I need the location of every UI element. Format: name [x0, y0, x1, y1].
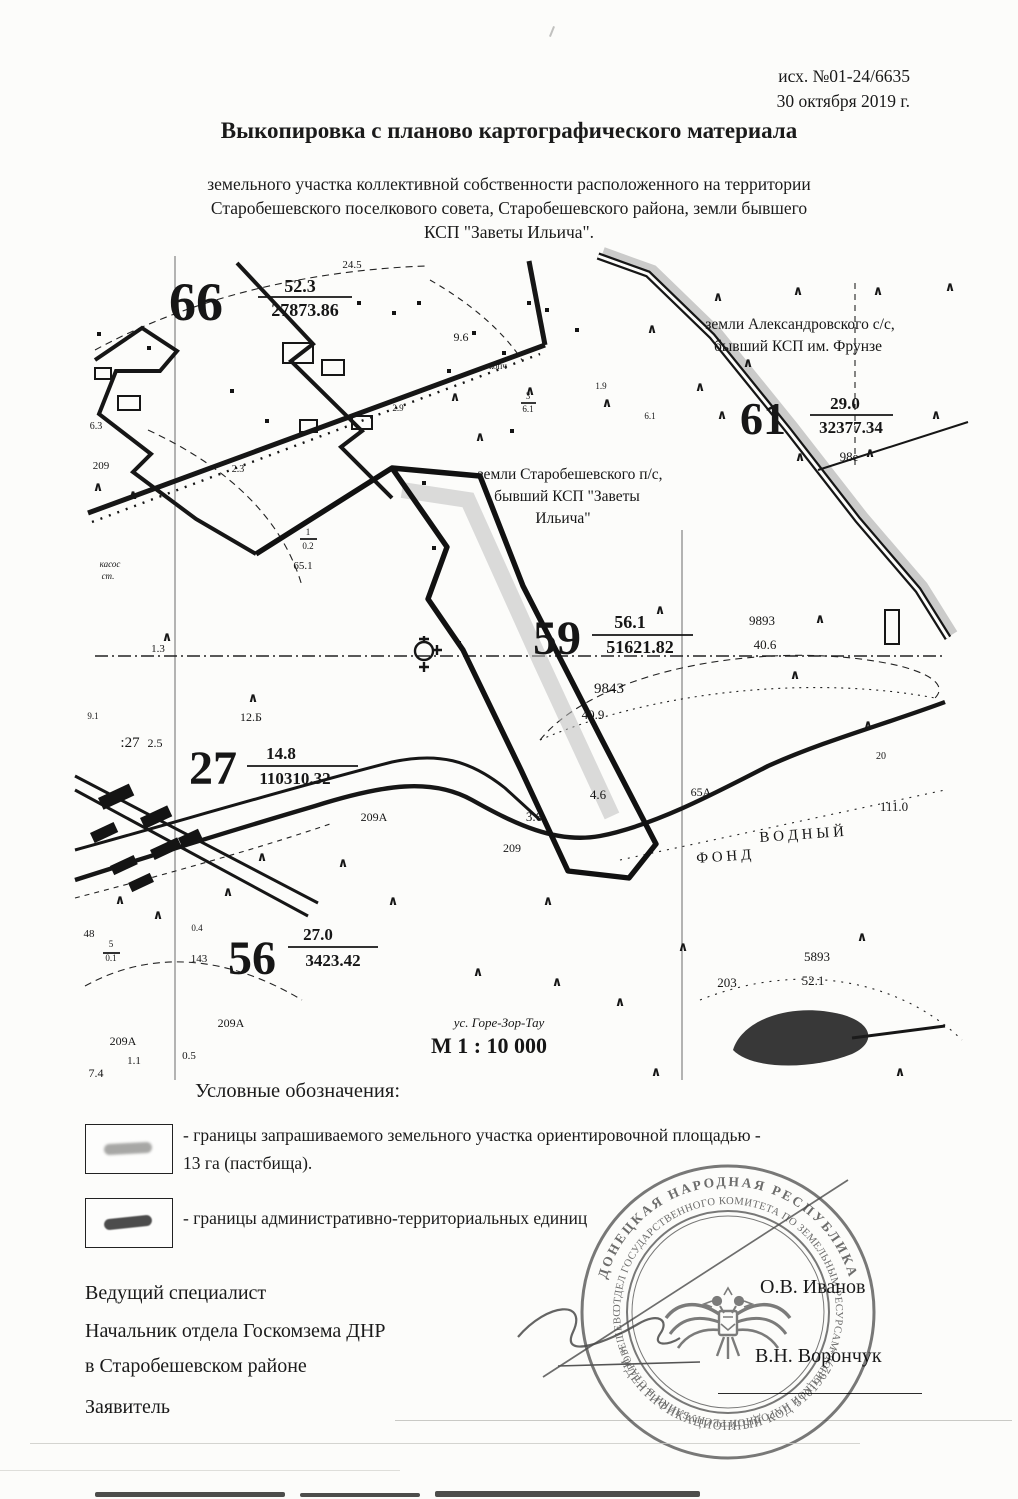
map-label: 2.5 [148, 736, 163, 750]
map-label: 9.6 [454, 330, 469, 344]
subtitle-line-3: КСП "Заветы Ильича". [424, 222, 594, 242]
map-label: 143 [191, 953, 208, 965]
cemetery-symbol [415, 636, 442, 672]
map-label: 52.1 [802, 973, 825, 988]
point-mark [527, 301, 531, 305]
map-label: 6.1 [644, 411, 655, 421]
signature-role-head-line1: Начальник отдела Госкомзема ДНР [85, 1320, 386, 1343]
pasture-caret-symbol: ∧ [793, 283, 804, 298]
map-label: 0.1 [105, 953, 116, 963]
map-label: земли Александровского с/с, [705, 316, 894, 333]
stamp-ring-outer-top: ДОНЕЦКАЯ НАРОДНАЯ РЕСПУБЛИКА [595, 1174, 862, 1280]
signature-role-applicant: Заявитель [85, 1396, 170, 1419]
map-label: :27 [120, 735, 140, 751]
map-label: 56 [228, 932, 276, 985]
map-label: 24.5 [342, 259, 362, 271]
map-label: Ф О Н Д [696, 847, 752, 867]
map-label: бывший КСП им. Фрунзе [714, 338, 882, 355]
signature-role-head-line2: в Старобешевском районе [85, 1355, 307, 1378]
map-label: ст. [102, 571, 115, 581]
bottom-cutoff-text-1 [95, 1492, 285, 1497]
map-label: 40.6 [754, 637, 777, 652]
reference-date: 30 октября 2019 г. [777, 89, 910, 114]
map-label: М 1 : 10 000 [431, 1033, 547, 1058]
point-mark [447, 369, 451, 373]
map-label: 6.3 [90, 421, 103, 432]
map-label: 56.1 [614, 612, 646, 632]
pasture-caret-symbol: ∧ [795, 449, 806, 464]
map-label: 1.1 [127, 1055, 141, 1067]
map-label: копч [489, 361, 507, 371]
pasture-caret-symbol: ∧ [450, 389, 461, 404]
map-label: 7.4 [89, 1066, 104, 1080]
map-roads [75, 252, 968, 1038]
point-mark [472, 331, 476, 335]
map-label: 66 [169, 272, 223, 332]
map-contours [75, 266, 962, 1040]
pasture-caret-symbol: ∧ [647, 321, 658, 336]
dnr-eagle-emblem [666, 1288, 790, 1359]
point-mark [545, 308, 549, 312]
point-mark [147, 346, 151, 350]
point-mark [422, 481, 426, 485]
pasture-caret-symbol: ∧ [552, 974, 563, 989]
point-mark [502, 351, 506, 355]
map-label: Ильича" [535, 510, 590, 527]
scan-artifact-top [549, 26, 555, 37]
legend-swatch-parcel [85, 1124, 173, 1174]
map-label: 98е [840, 449, 859, 464]
signature-role-specialist: Ведущий специалист [85, 1282, 266, 1305]
map-label: касос [100, 559, 121, 569]
map-label: 209А [361, 810, 388, 824]
map-label: 209А [218, 1016, 245, 1030]
pasture-caret-symbol: ∧ [153, 907, 164, 922]
map-label: 27 [189, 742, 237, 795]
pasture-caret-symbol: ∧ [865, 445, 876, 460]
map-label: 65.1 [293, 560, 312, 572]
map-label: 110310.32 [259, 769, 330, 788]
map-labels: 24.56652.327873.86земли Александровского… [84, 259, 909, 1080]
building-outline [322, 360, 344, 375]
building-outline [95, 368, 111, 379]
village-blocks [90, 784, 202, 892]
admin-boundary-swatch [104, 1215, 153, 1231]
pasture-caret-symbol: ∧ [945, 279, 956, 294]
subtitle-line-2: Старобешевского поселкового совета, Стар… [211, 198, 807, 218]
village-building [128, 873, 154, 892]
pasture-caret-symbol: ∧ [863, 717, 874, 732]
map-label: 3 [526, 391, 531, 401]
pasture-caret-symbol: ∧ [695, 379, 706, 394]
official-stamp: ДОНЕЦКАЯ НАРОДНАЯ РЕСПУБЛИКА * ИДЕНТИФИК… [578, 1162, 878, 1462]
document-title: Выкопировка с планово картографического … [0, 118, 1018, 144]
map-label: 1 [306, 527, 311, 537]
pasture-caret-symbol: ∧ [651, 1064, 662, 1079]
map-label: 5 [109, 939, 114, 949]
map-label: В О Д Н Ы Й [759, 823, 845, 846]
point-mark [457, 641, 461, 645]
map-label: 209 [93, 460, 110, 472]
pasture-caret-symbol: ∧ [388, 893, 399, 908]
map-label: 61 [740, 393, 786, 444]
map-label: 9843 [594, 681, 624, 697]
scan-line-1 [30, 1443, 860, 1444]
building-outline [885, 610, 899, 644]
map-label: 20 [876, 751, 886, 762]
legend-item-parcel-line1: - границы запрашиваемого земельного учас… [183, 1125, 761, 1145]
point-mark [230, 389, 234, 393]
village-building [110, 855, 138, 875]
map-label: ус. Горе-Зор-Тау [452, 1015, 545, 1030]
map-label: 29.0 [830, 394, 860, 413]
map-label: 5893 [804, 949, 830, 964]
point-mark [432, 546, 436, 550]
pasture-caret-symbol: ∧ [248, 690, 259, 705]
building-outline [118, 396, 140, 410]
point-mark [575, 328, 579, 332]
pasture-caret-symbol: ∧ [257, 849, 268, 864]
map-label: 0.5 [182, 1050, 196, 1062]
map-label: бывший КСП "Заветы [494, 488, 640, 505]
reference-block: исх. №01-24/6635 30 октября 2019 г. [777, 64, 910, 114]
reference-number: исх. №01-24/6635 [777, 64, 910, 89]
scan-line-2 [0, 1470, 400, 1471]
pasture-caret-symbol: ∧ [162, 629, 173, 644]
bottom-cutoff-text-3 [435, 1491, 700, 1497]
map-label: 52.3 [284, 276, 316, 296]
map-label: 65А [691, 785, 712, 799]
point-mark [392, 311, 396, 315]
map-label: 0.4 [191, 923, 203, 933]
map-label: 2.3 [232, 464, 245, 475]
map-label: 1.3 [151, 643, 165, 655]
map-label: 12.Б [240, 710, 262, 724]
pond-feature [733, 1010, 868, 1065]
map-label: 6.1 [522, 404, 533, 414]
stamp-ring-inner: ОТДЕЛ ГОСУДАРСТВЕННОГО КОМИТЕТА ПО ЗЕМЕЛ… [573, 1153, 844, 1429]
point-mark [97, 332, 101, 336]
village-building [98, 784, 134, 810]
map-label: 48 [84, 928, 96, 940]
pasture-caret-symbol: ∧ [678, 939, 689, 954]
map-label: 209А [110, 1034, 137, 1048]
map-label: 3.6 [526, 809, 543, 824]
map-label: 2.9 [392, 403, 404, 413]
map-label: 40.9 [582, 707, 605, 722]
point-mark [417, 301, 421, 305]
pasture-caret-symbol: ∧ [473, 964, 484, 979]
map-label: земли Старобешевского п/с, [477, 466, 662, 483]
pasture-caret-symbol: ∧ [543, 893, 554, 908]
map-label: 203 [717, 975, 737, 990]
map-label: 4.6 [590, 787, 607, 802]
pasture-caret-symbol: ∧ [931, 407, 942, 422]
pasture-caret-symbol: ∧ [615, 994, 626, 1009]
pasture-caret-symbol: ∧ [713, 289, 724, 304]
bottom-cutoff-text-2 [300, 1493, 420, 1497]
map-label: 27873.86 [271, 300, 339, 320]
map-label: 1.9 [595, 381, 607, 391]
parcel-boundary-swatch [104, 1142, 153, 1155]
pasture-caret-symbol: ∧ [655, 602, 666, 617]
legend-item-admin-line1: - границы административно-территориальны… [183, 1208, 587, 1228]
map-label: 3423.42 [305, 951, 360, 970]
pasture-caret-symbol: ∧ [93, 479, 104, 494]
legend-swatch-admin [85, 1198, 173, 1248]
pasture-caret-symbol: ∧ [602, 395, 613, 410]
pasture-caret-symbol: ∧ [338, 855, 349, 870]
point-mark [510, 429, 514, 433]
point-mark [265, 419, 269, 423]
pasture-caret-symbol: ∧ [857, 929, 868, 944]
pasture-caret-symbol: ∧ [223, 884, 234, 899]
requested-parcel-boundary [256, 468, 656, 878]
topographic-map: ∧∧∧∧∧∧∧∧∧∧∧∧∧∧∧∧∧∧∧∧∧∧∧∧∧∧∧∧∧∧∧∧∧∧∧∧∧ 24… [60, 250, 958, 1090]
pasture-caret-symbol: ∧ [115, 892, 126, 907]
map-label: 9.1 [87, 711, 98, 721]
pasture-caret-symbol: ∧ [873, 283, 884, 298]
map-label: 14.8 [266, 744, 296, 763]
map-label: 59 [533, 612, 581, 665]
document-subtitle: земельного участка коллективной собствен… [0, 172, 1018, 244]
pasture-caret-symbol: ∧ [128, 487, 139, 502]
pasture-caret-symbol: ∧ [475, 429, 486, 444]
pasture-caret-symbol: ∧ [895, 1064, 906, 1079]
map-label: 32377.34 [819, 418, 883, 437]
legend-item-parcel-line2: 13 га (пастбища). [183, 1153, 312, 1173]
map-label: 111.0 [880, 799, 908, 814]
map-label: 9893 [749, 613, 775, 628]
pasture-caret-symbol: ∧ [717, 407, 728, 422]
pasture-caret-symbol: ∧ [743, 355, 754, 370]
legend-header: Условные обозначения: [195, 1080, 400, 1103]
document-page: исх. №01-24/6635 30 октября 2019 г. Выко… [0, 0, 1018, 1499]
map-label: 0.2 [302, 541, 313, 551]
map-label: 51621.82 [606, 637, 674, 657]
map-label: 27.0 [303, 925, 333, 944]
map-label: 209 [503, 841, 521, 855]
pasture-caret-symbol: ∧ [815, 611, 826, 626]
subtitle-line-1: земельного участка коллективной собствен… [207, 174, 811, 194]
point-mark [357, 301, 361, 305]
pasture-caret-symbol: ∧ [790, 667, 801, 682]
